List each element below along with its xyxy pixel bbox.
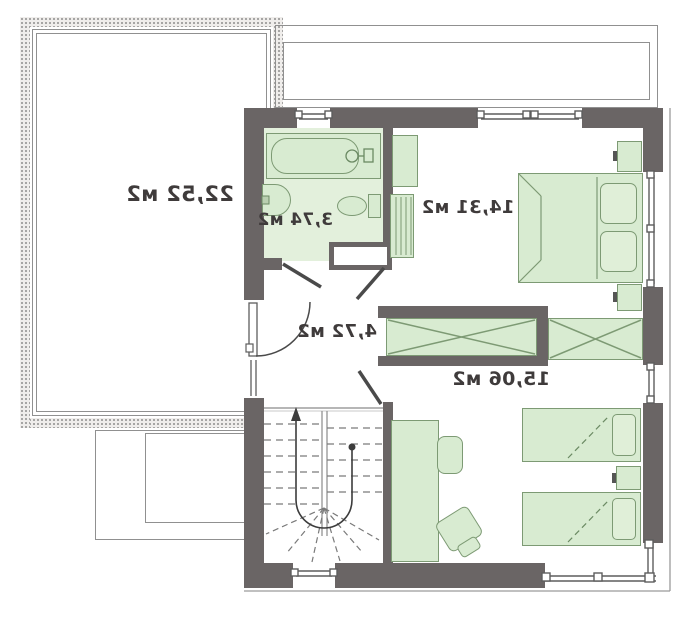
window-master: [477, 111, 582, 119]
window-stair: [291, 569, 337, 576]
roof-outline: [244, 108, 670, 591]
bathtub-tap: [346, 149, 373, 162]
stairs: [264, 407, 383, 562]
master-bedroom-area-label: 14,31 м2: [414, 199, 522, 217]
blanket-folds: [568, 416, 609, 542]
second-bedroom-area-label: 15,06 м2: [437, 370, 565, 389]
dresser-slats: [396, 197, 411, 255]
window-right-2: [647, 363, 654, 403]
window-right-1: [647, 171, 654, 287]
terrace-area-label: 22,52 м2: [105, 184, 255, 205]
hallway-area-label: 4,72 м2: [285, 323, 389, 341]
window-bathroom: [295, 111, 332, 119]
nightstand-handles: [612, 151, 617, 483]
bathroom-area-label: 3,74 м2: [261, 212, 333, 229]
bedroom2-door-leaf: [359, 371, 381, 404]
sink-tap: [262, 196, 269, 204]
window-corner: [542, 540, 656, 582]
bed-details: [519, 174, 597, 282]
master-door-leaf: [357, 268, 384, 299]
bathroom-door-leaf: [283, 264, 321, 287]
balcony-door: [246, 302, 310, 396]
wardrobe-x-marks: [388, 320, 641, 358]
linework-overlay: [0, 0, 700, 630]
floor-plan: 22,52 м2 3,74 м2 14,31 м2 4,72 м2 15,06 …: [0, 0, 700, 630]
